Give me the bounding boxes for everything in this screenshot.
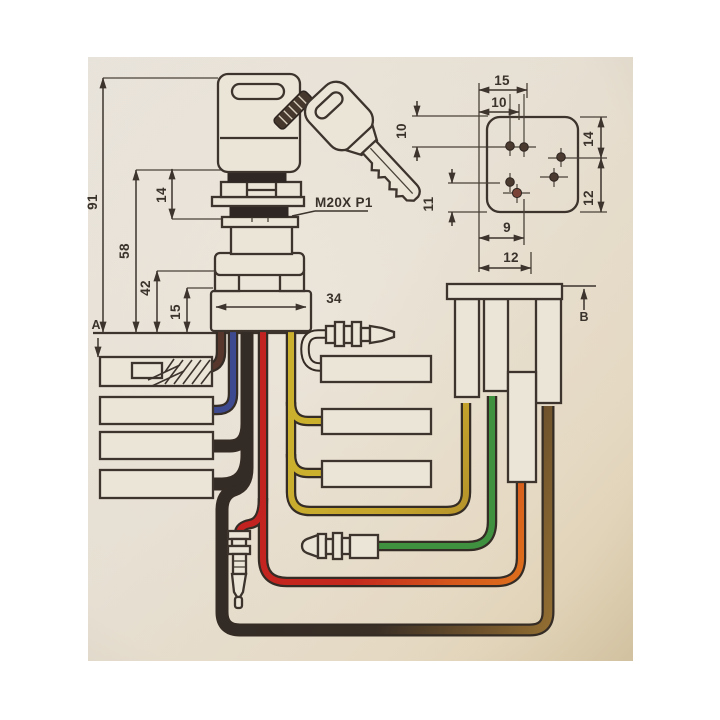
middle-socket-blocks xyxy=(321,356,431,487)
switch-shoulder xyxy=(215,253,304,275)
dim-thread-section: 14 xyxy=(154,187,169,203)
switch-ring-nut xyxy=(222,217,298,227)
dim-base-width: 34 xyxy=(326,291,342,306)
dim-overall-height: 91 xyxy=(85,194,100,210)
dim-right-bottom: 12 xyxy=(581,190,596,206)
terminal-block-4 xyxy=(100,470,213,498)
thread-size-label: M20X P1 xyxy=(315,195,373,210)
dim-right-top: 14 xyxy=(581,131,596,147)
dim-top-inner: 10 xyxy=(491,95,507,110)
socket-block-c xyxy=(322,461,431,487)
switch-hex-nut xyxy=(221,182,301,197)
bullet-connector-green xyxy=(302,533,378,559)
connector-inner-block xyxy=(508,372,536,482)
catalog-photo-page: { "drawing": { "thread_label": "M20X P1"… xyxy=(0,0,720,720)
connector-prong-2 xyxy=(484,299,508,391)
socket-block-b xyxy=(322,409,431,434)
dim-bottom-width: 12 xyxy=(503,250,519,265)
terminal-pin xyxy=(550,173,559,182)
terminal-pin xyxy=(506,178,515,187)
terminal-pin xyxy=(512,188,521,197)
dim-upper-height: 58 xyxy=(117,243,132,259)
dim-base-height: 15 xyxy=(168,304,183,320)
dim-left-top: 10 xyxy=(394,123,409,139)
terminal-block-3 xyxy=(100,432,213,459)
switch-washer xyxy=(212,197,304,206)
section-a-label: A xyxy=(91,318,100,332)
switch-neck xyxy=(231,226,292,254)
socket-block-a xyxy=(321,356,431,382)
connector-prong-3 xyxy=(536,299,561,403)
terminal-block-sectioned xyxy=(100,357,212,386)
section-b-label: B xyxy=(579,310,588,324)
terminal-pin xyxy=(506,142,515,151)
dim-left-bottom: 11 xyxy=(421,196,436,211)
terminal-block-2 xyxy=(100,397,213,424)
ignition-switch-technical-drawing: 91 58 42 14 15 A xyxy=(0,0,720,720)
dim-lower-height: 42 xyxy=(138,280,153,296)
terminal-pin xyxy=(557,153,566,162)
connector-cap xyxy=(447,284,562,299)
terminal-pin xyxy=(520,143,529,152)
switch-base xyxy=(211,291,311,331)
dim-bottom-inner: 9 xyxy=(503,220,511,235)
connector-prong-1 xyxy=(455,299,479,397)
dim-top-width: 15 xyxy=(494,73,510,88)
